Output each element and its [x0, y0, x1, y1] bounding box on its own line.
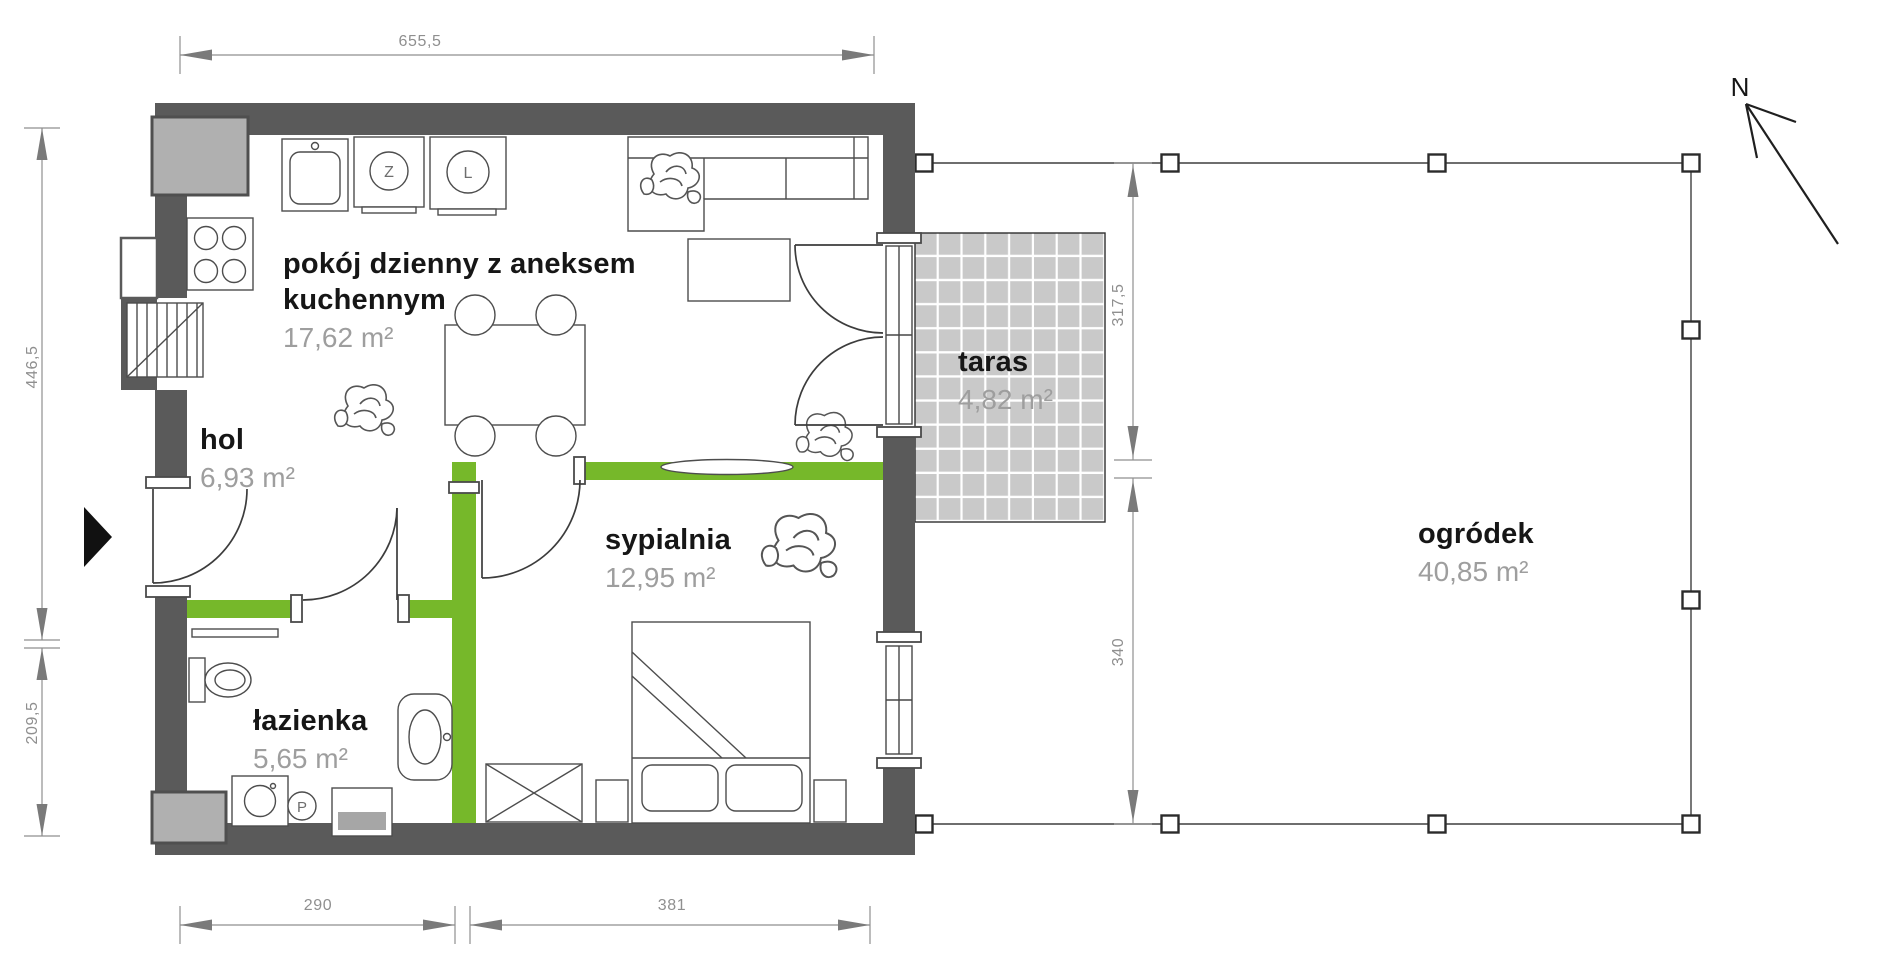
entrance-door: [153, 489, 247, 583]
towel-rail: [192, 629, 278, 637]
plant-bedroom: [762, 514, 837, 577]
fence-post: [1429, 155, 1446, 172]
wall-niche: [121, 238, 157, 298]
plan-drawing: Z L P N: [0, 0, 1900, 975]
stove: [187, 218, 253, 290]
entrance-arrow: [84, 507, 112, 567]
fence-post: [1683, 816, 1700, 833]
balcony-door-frame: [886, 246, 912, 424]
north-arrow: [1746, 104, 1838, 244]
terrace-tiles: [915, 233, 1105, 522]
nightstand: [814, 780, 846, 822]
radiator: [127, 303, 203, 377]
floor-plan: Z L P N pokój dzienny z aneksem kuchenny…: [0, 0, 1900, 975]
dim-left-upper: 446,5: [24, 345, 42, 388]
bedroom-furniture: [486, 514, 846, 823]
bathroom-cabinet: [332, 788, 392, 836]
bedroom-door: [482, 480, 580, 578]
bedroom-window: [886, 646, 912, 754]
chair: [455, 295, 495, 335]
fence-post: [1162, 155, 1179, 172]
dining-table: [445, 325, 585, 425]
dining-set: [445, 295, 585, 456]
dim-top-width: 655,5: [398, 33, 441, 51]
dim-garden-lower: 340: [1110, 638, 1128, 667]
fence-post: [1429, 816, 1446, 833]
bathroom-door: [303, 508, 397, 600]
washing-machine: [232, 776, 288, 826]
fence-post: [916, 155, 933, 172]
chair: [536, 295, 576, 335]
dim-bottom-bedroom: 381: [658, 897, 687, 915]
coffee-table: [688, 239, 790, 301]
fence-post: [1683, 322, 1700, 339]
nightstand: [596, 780, 628, 822]
washing-machine-mark: P: [297, 799, 307, 816]
chair: [536, 416, 576, 456]
dim-left-lower: 209,5: [24, 701, 42, 744]
shaft-block-bottom-left: [152, 792, 226, 843]
north-label: N: [1731, 72, 1750, 102]
fridge-mark: L: [464, 165, 473, 182]
fence-post: [916, 816, 933, 833]
wardrobe: [486, 764, 582, 822]
tv-console: [661, 460, 793, 475]
plant-hall: [335, 385, 395, 435]
dim-bottom-bathroom: 290: [304, 897, 333, 915]
bathroom-fixtures: [189, 629, 452, 836]
fence-post: [1683, 155, 1700, 172]
toilet: [189, 658, 251, 702]
chair: [455, 416, 495, 456]
washbasin: [398, 694, 452, 780]
fence-post: [1162, 816, 1179, 833]
shaft-block-top-left: [152, 117, 248, 195]
dim-garden-upper: 317,5: [1110, 283, 1128, 326]
fence-post: [1683, 592, 1700, 609]
kitchen-sink: [282, 139, 348, 211]
balcony-french-doors: [795, 245, 883, 425]
plant-living: [796, 413, 853, 461]
dishwasher-mark: Z: [384, 164, 394, 181]
bed: [632, 622, 810, 823]
